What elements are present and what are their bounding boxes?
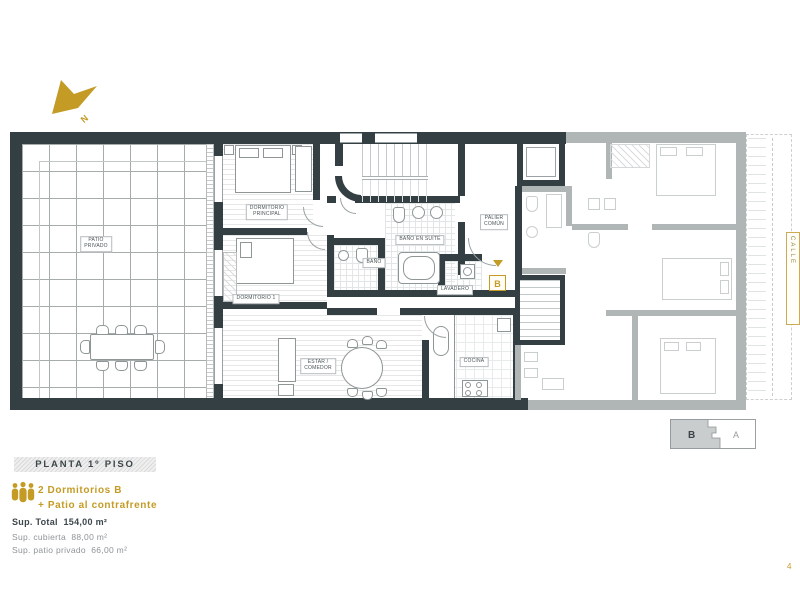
wall bbox=[327, 290, 515, 297]
wall-unit-a bbox=[566, 132, 744, 143]
chair bbox=[347, 388, 358, 397]
sup-cubierta: Sup. cubierta 88,00 m² bbox=[12, 532, 107, 542]
keyplan-unit-a-label: A bbox=[733, 430, 739, 440]
wall-unit-a bbox=[606, 310, 744, 316]
patio-chair bbox=[96, 325, 109, 335]
sink bbox=[412, 206, 425, 219]
plan-title-band: PLANTA 1º PISO bbox=[14, 457, 156, 472]
wall-unit-a bbox=[522, 186, 566, 192]
pillow bbox=[720, 262, 729, 276]
pillow bbox=[720, 280, 729, 294]
wall bbox=[458, 144, 465, 196]
sink-unit-a bbox=[588, 198, 600, 210]
street-label-box: CALLE bbox=[786, 232, 800, 325]
planter-strip bbox=[206, 144, 214, 398]
wall bbox=[214, 228, 307, 235]
burner bbox=[476, 390, 482, 396]
sup-patio: Sup. patio privado 66,00 m² bbox=[12, 545, 127, 555]
elevator bbox=[517, 138, 565, 186]
pillow bbox=[664, 342, 679, 351]
chair bbox=[362, 391, 373, 400]
sink bbox=[430, 206, 443, 219]
sink-unit-a bbox=[604, 198, 616, 210]
unit-b-marker: B bbox=[489, 275, 506, 291]
unit-type: 2 Dormitorios B bbox=[38, 485, 122, 496]
wall-unit-a bbox=[736, 132, 746, 400]
sup-total: Sup. Total 154,00 m² bbox=[12, 517, 107, 527]
burner bbox=[476, 382, 482, 388]
wall bbox=[422, 340, 429, 398]
room-label-cocina: COCINA bbox=[460, 357, 489, 367]
elevator-cab bbox=[526, 147, 556, 177]
shower-unit-a bbox=[546, 194, 562, 228]
stair-treads bbox=[362, 144, 428, 176]
patio-chair bbox=[134, 325, 147, 335]
toilet-unit-a bbox=[588, 232, 600, 248]
wall-unit-a bbox=[632, 316, 638, 400]
stair-treads bbox=[520, 280, 560, 340]
wall bbox=[313, 144, 320, 200]
wall bbox=[10, 132, 22, 410]
chair bbox=[376, 388, 387, 397]
sink-unit-a bbox=[526, 226, 538, 238]
fridge bbox=[497, 318, 511, 332]
window bbox=[214, 156, 223, 202]
entry-arrow-icon bbox=[493, 260, 503, 267]
sink bbox=[338, 250, 349, 261]
patio-chair bbox=[115, 325, 128, 335]
room-label-lavadero: LAVADERO bbox=[437, 285, 473, 295]
wall-unit-a bbox=[515, 345, 521, 400]
patio-chair bbox=[80, 340, 90, 354]
wood-floor bbox=[223, 315, 422, 398]
armchair bbox=[278, 384, 294, 396]
wall-unit-a bbox=[522, 268, 566, 274]
chair bbox=[376, 340, 387, 349]
desk-unit-a bbox=[524, 368, 538, 378]
keyplan: B A bbox=[670, 419, 756, 449]
window bbox=[375, 133, 417, 143]
north-label: N bbox=[79, 113, 90, 125]
wall bbox=[400, 308, 515, 315]
room-label-estar: ESTAR /COMEDOR bbox=[300, 358, 336, 374]
burner bbox=[465, 390, 471, 396]
toilet bbox=[393, 207, 405, 223]
room-label-bano: BAÑO bbox=[363, 258, 386, 268]
patio-chair bbox=[155, 340, 165, 354]
patio-table bbox=[90, 334, 154, 360]
street-label: CALLE bbox=[789, 236, 795, 265]
room-label-dorm-1: DORMITORIO 1 bbox=[233, 294, 280, 304]
bathtub-basin bbox=[403, 256, 435, 280]
chair bbox=[347, 339, 358, 348]
patio-paving-edge bbox=[39, 161, 222, 406]
chair bbox=[362, 336, 373, 345]
stair-treads-dashed bbox=[362, 180, 428, 202]
nightstand bbox=[224, 145, 234, 155]
wall bbox=[10, 132, 566, 144]
washer-drum bbox=[463, 267, 472, 276]
window bbox=[340, 133, 362, 143]
floor-plan: PATIOPRIVADO DORMITORIOPRINCIPAL DORMITO… bbox=[10, 132, 800, 410]
window bbox=[214, 328, 223, 384]
wall bbox=[10, 398, 528, 410]
wall bbox=[327, 196, 336, 203]
closet-unit-a bbox=[610, 144, 650, 168]
dining-table bbox=[341, 347, 383, 389]
wall bbox=[515, 186, 522, 275]
brochure-page: { "page": { "number": "4" }, "colors": {… bbox=[0, 0, 800, 600]
desk-unit-a bbox=[524, 352, 538, 362]
toilet-unit-a bbox=[526, 196, 538, 212]
patio-chair bbox=[115, 361, 128, 371]
room-label-palier: PALIERCOMÚN bbox=[480, 214, 508, 230]
people-icon bbox=[10, 481, 36, 503]
unit-feature: + Patio al contrafrente bbox=[38, 500, 157, 511]
door-arc bbox=[340, 198, 356, 214]
door-arc bbox=[424, 316, 446, 338]
patio-chair bbox=[96, 361, 109, 371]
internal-stair bbox=[515, 275, 565, 345]
wall-unit-a bbox=[572, 224, 628, 230]
burner bbox=[465, 382, 471, 388]
room-label-dorm-principal: DORMITORIOPRINCIPAL bbox=[246, 204, 288, 220]
balcony-edge-dashed bbox=[772, 138, 773, 396]
north-arrow: N bbox=[40, 78, 104, 134]
page-number: 4 bbox=[787, 562, 791, 571]
pillow bbox=[686, 147, 703, 156]
room-label-patio: PATIOPRIVADO bbox=[80, 236, 112, 252]
keyplan-unit-b-label: B bbox=[688, 430, 695, 441]
pillow bbox=[239, 148, 259, 158]
table-unit-a bbox=[542, 378, 564, 390]
pillow bbox=[263, 148, 283, 158]
plan-title: PLANTA 1º PISO bbox=[35, 459, 134, 470]
pillow bbox=[660, 147, 677, 156]
balcony-hatch bbox=[748, 138, 766, 396]
pillow bbox=[240, 242, 252, 258]
wardrobe bbox=[295, 146, 312, 192]
north-arrow-glyph bbox=[52, 80, 97, 114]
sofa bbox=[278, 338, 296, 382]
wall bbox=[335, 144, 343, 166]
wall-unit-a bbox=[652, 224, 744, 230]
wall-unit-a bbox=[528, 400, 746, 410]
pillow bbox=[686, 342, 701, 351]
room-label-bano-suite: BAÑO EN SUITE bbox=[395, 235, 444, 245]
wall bbox=[327, 308, 377, 315]
wall bbox=[327, 238, 385, 245]
wall-unit-a bbox=[566, 186, 572, 226]
patio-chair bbox=[134, 361, 147, 371]
window bbox=[214, 250, 223, 296]
